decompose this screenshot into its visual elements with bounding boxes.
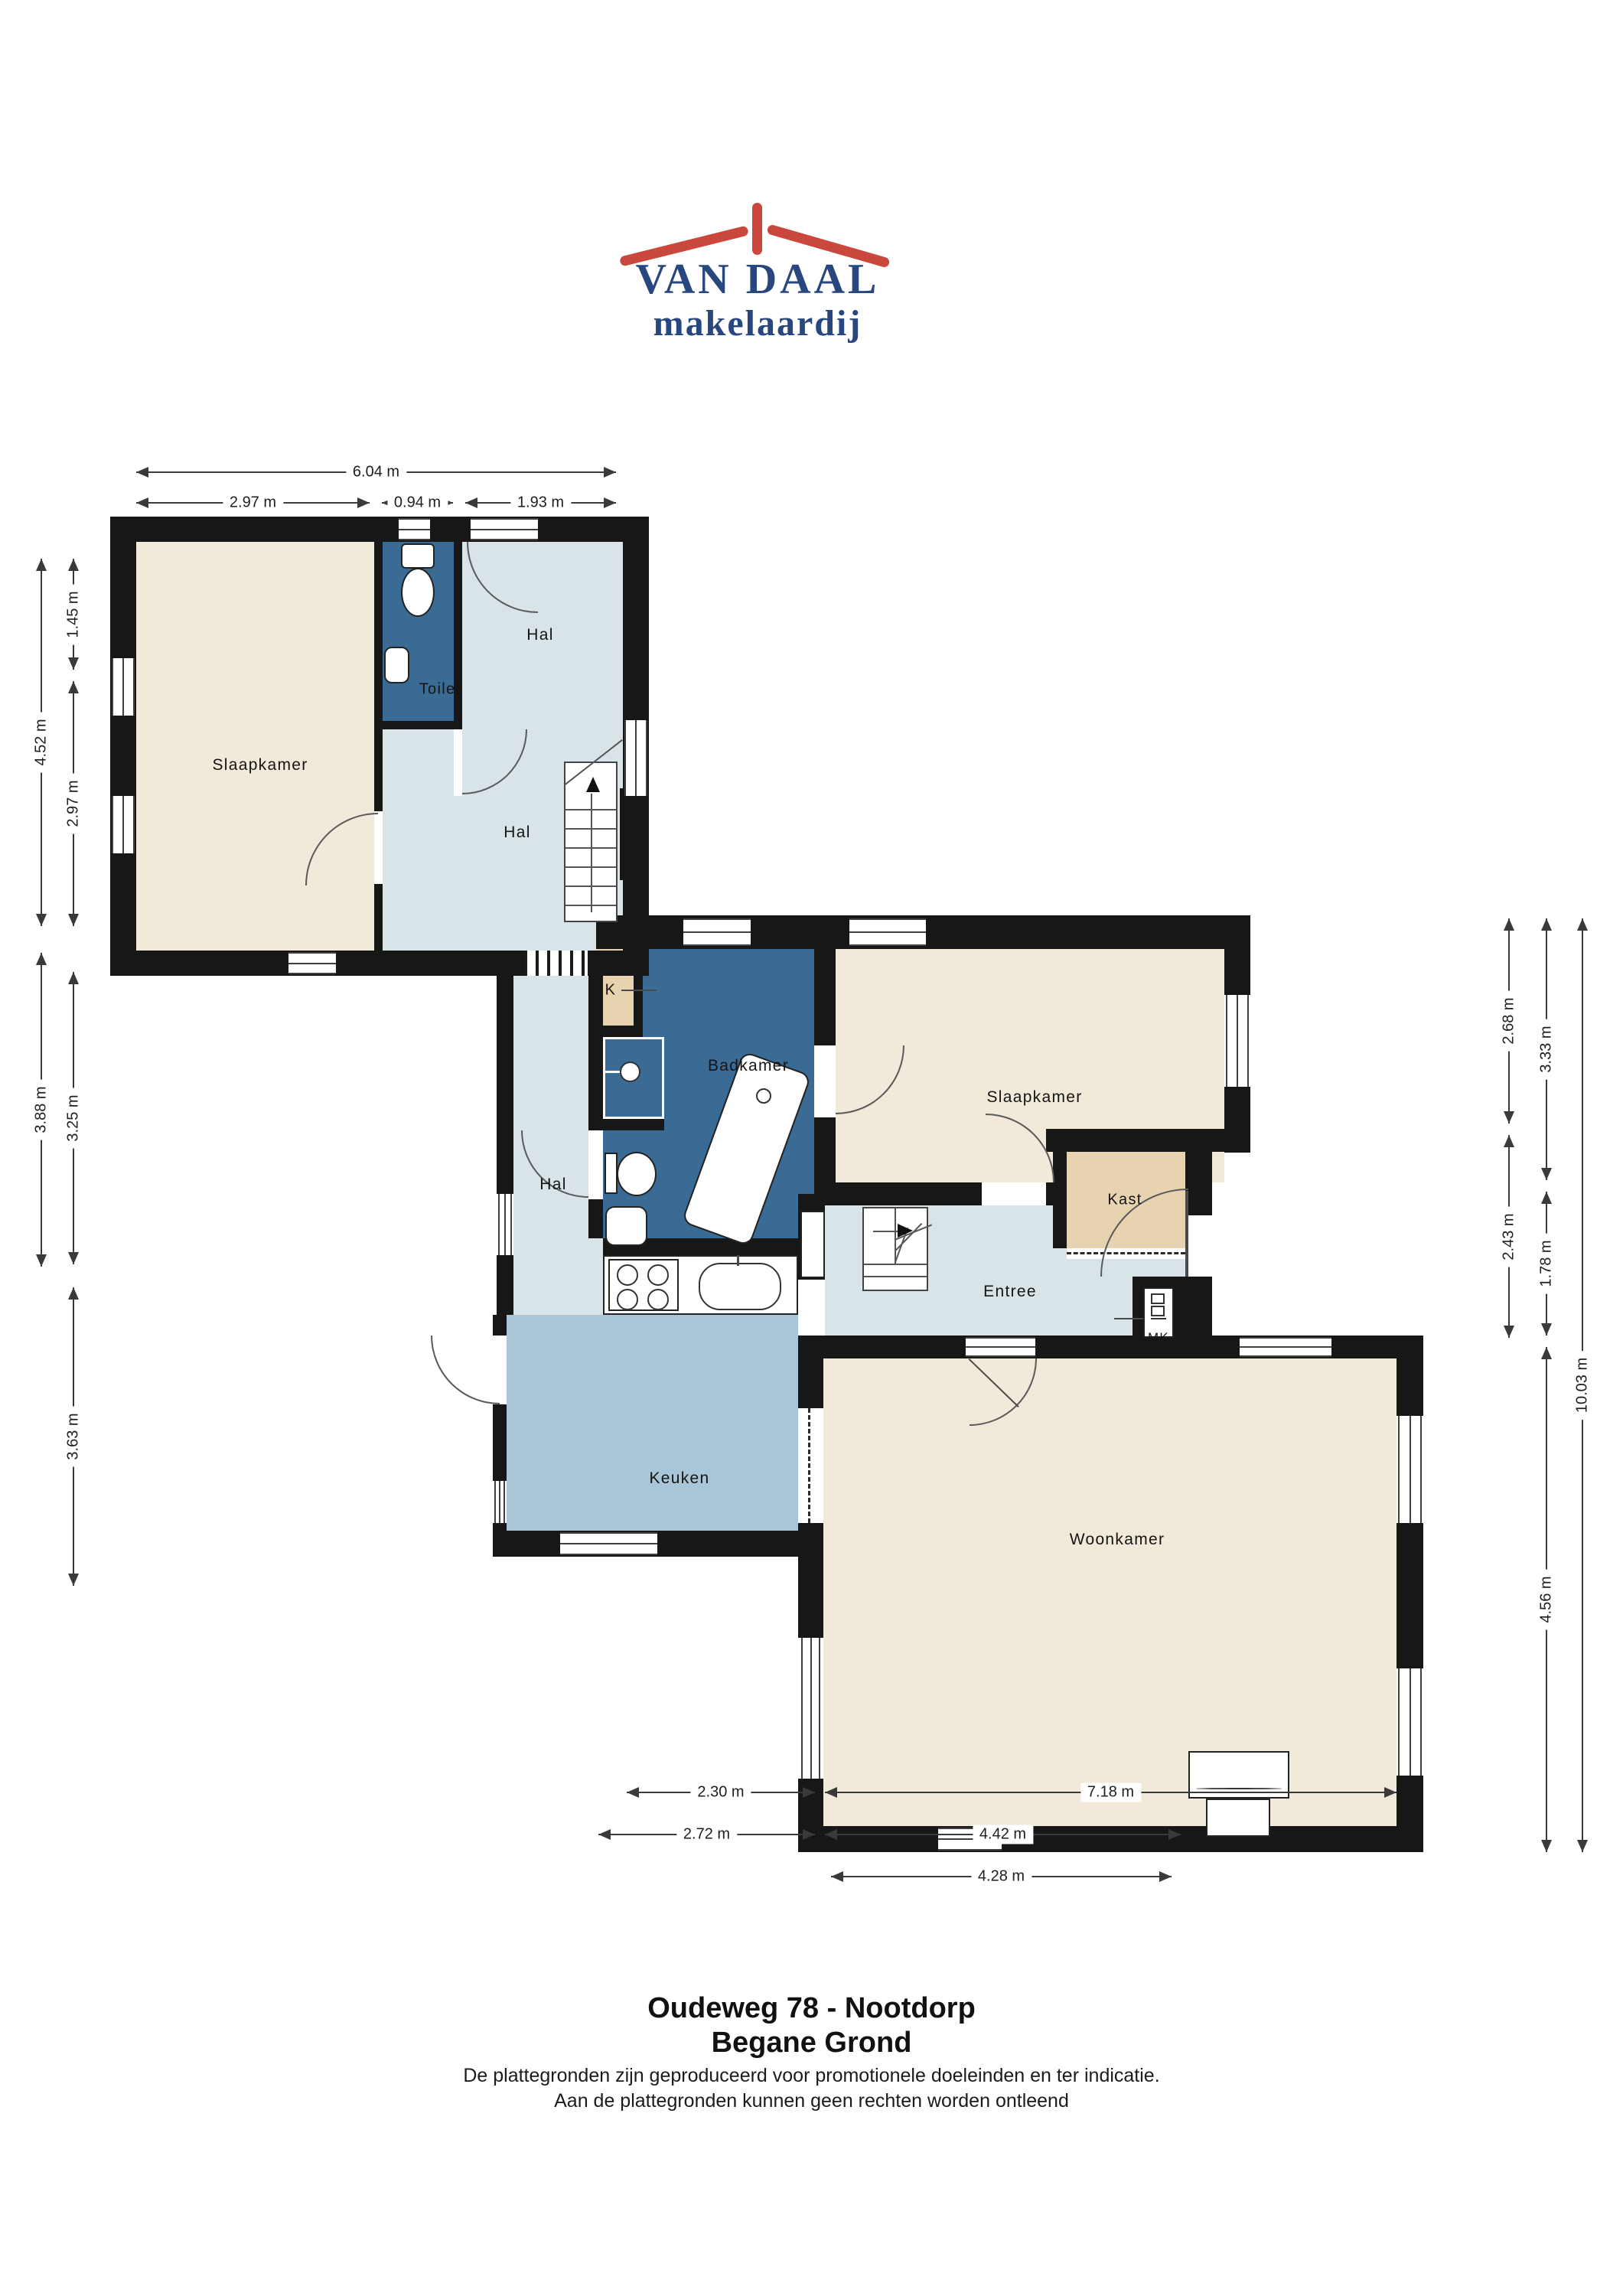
window-icon bbox=[1398, 1416, 1422, 1523]
wall bbox=[1046, 1129, 1250, 1152]
wall bbox=[1396, 1523, 1423, 1668]
dimension-top-b: 0.94 m bbox=[382, 494, 453, 512]
toilet-icon bbox=[617, 1152, 657, 1196]
dimension-right-mid-a: 3.33 m bbox=[1537, 918, 1556, 1180]
dimension-right-inner-a: 2.68 m bbox=[1500, 918, 1518, 1124]
wall bbox=[596, 1026, 634, 1037]
dimension-left-outer-a: 4.52 m bbox=[32, 559, 51, 926]
kitchen-sink-icon bbox=[699, 1263, 781, 1310]
k-leader-line bbox=[621, 990, 657, 991]
faucet-icon bbox=[737, 1255, 739, 1266]
room-woonkamer bbox=[823, 1358, 1396, 1826]
wall bbox=[374, 729, 383, 811]
window-icon bbox=[112, 658, 135, 716]
window-icon bbox=[624, 720, 647, 796]
door-opening bbox=[966, 1337, 1035, 1357]
window-icon bbox=[112, 796, 135, 853]
wall bbox=[1396, 1336, 1423, 1416]
room-label-kast: Kast bbox=[1107, 1192, 1142, 1209]
wall bbox=[1224, 915, 1250, 995]
bathtub-faucet-icon bbox=[756, 1088, 771, 1104]
window-icon bbox=[683, 918, 751, 946]
window-icon bbox=[399, 518, 430, 540]
stairs-up-arrow bbox=[898, 1224, 913, 1238]
wall bbox=[493, 1404, 507, 1481]
room-label-keuken: Keuken bbox=[649, 1469, 709, 1488]
dimension-left-inner-a: 1.45 m bbox=[64, 559, 83, 670]
wall bbox=[798, 1523, 823, 1638]
wall bbox=[588, 976, 603, 1130]
wall bbox=[620, 788, 649, 880]
room-label-slaapkamer-2: Slaapkamer bbox=[986, 1088, 1082, 1107]
window-icon bbox=[801, 1638, 820, 1779]
stairs-up-arrow bbox=[586, 777, 600, 792]
room-label-hal-top: Hal bbox=[526, 626, 553, 644]
logo-chimney-icon bbox=[752, 203, 762, 255]
window-icon bbox=[1240, 1337, 1331, 1357]
window-icon bbox=[1226, 995, 1249, 1087]
door-opening bbox=[454, 729, 462, 796]
door-opening bbox=[814, 1045, 836, 1117]
shower-arm bbox=[603, 1071, 620, 1073]
dimension-bot2-a: 2.72 m bbox=[598, 1825, 815, 1844]
stairs-icon bbox=[564, 762, 618, 922]
dimension-bot3: 4.28 m bbox=[831, 1867, 1172, 1886]
sink-icon bbox=[384, 647, 409, 683]
burner-icon bbox=[647, 1289, 669, 1310]
window-icon bbox=[471, 518, 538, 540]
window-icon bbox=[498, 1194, 512, 1255]
burner-icon bbox=[617, 1264, 638, 1286]
stairs-icon bbox=[862, 1207, 928, 1291]
wall bbox=[1046, 1182, 1053, 1205]
title-block: Oudeweg 78 - Nootdorp Begane Grond bbox=[0, 1991, 1623, 2060]
wall bbox=[374, 721, 462, 729]
room-label-slaapkamer-1: Slaapkamer bbox=[212, 756, 308, 775]
room-label-k-closet: K bbox=[605, 982, 617, 1000]
wall bbox=[1053, 1152, 1067, 1248]
logo-text-main: VAN DAAL bbox=[605, 258, 911, 301]
dimension-bot1-a: 2.30 m bbox=[627, 1783, 815, 1802]
passage-opening bbox=[798, 1280, 825, 1336]
mk-leader-line bbox=[1114, 1318, 1143, 1319]
dimension-bot1-b: 7.18 m bbox=[825, 1783, 1396, 1802]
wall bbox=[493, 1315, 507, 1336]
room-label-hal-corridor: Hal bbox=[539, 1176, 566, 1194]
open-connection-dashes bbox=[808, 1408, 810, 1523]
window-icon bbox=[1398, 1668, 1422, 1776]
wall bbox=[497, 1255, 513, 1315]
dimension-top-total: 6.04 m bbox=[136, 463, 616, 481]
sliding-door-icon bbox=[524, 951, 588, 976]
room-label-mk: MK bbox=[1148, 1330, 1169, 1345]
pass-through-counter bbox=[800, 1211, 825, 1278]
agency-logo: VAN DAAL makelaardij bbox=[605, 195, 911, 342]
dimension-left-inner-b: 2.97 m bbox=[64, 681, 83, 926]
dimension-top-a: 2.97 m bbox=[136, 494, 370, 512]
open-connection bbox=[798, 1408, 823, 1523]
room-label-woonkamer: Woonkamer bbox=[1070, 1531, 1165, 1549]
wall bbox=[814, 1117, 836, 1182]
window-icon bbox=[288, 952, 336, 974]
door-opening bbox=[1185, 1215, 1212, 1277]
room-label-badkamer: Badkamer bbox=[708, 1057, 789, 1075]
floorplan-page: VAN DAAL makelaardij bbox=[0, 0, 1623, 2296]
dimension-left-outer-b: 3.88 m bbox=[32, 953, 51, 1267]
wall bbox=[798, 1358, 823, 1408]
disclaimer: De plattegronden zijn geproduceerd voor … bbox=[0, 2063, 1623, 2113]
page-title: Oudeweg 78 - Nootdorp bbox=[0, 1991, 1623, 2026]
wall bbox=[374, 884, 383, 951]
shower-head-icon bbox=[620, 1062, 640, 1082]
wall bbox=[110, 517, 136, 976]
wall bbox=[634, 949, 643, 1037]
door-opening bbox=[982, 1182, 1046, 1205]
dimension-right-mid-c: 4.56 m bbox=[1537, 1347, 1556, 1852]
dimension-left-inner-c: 3.25 m bbox=[64, 972, 83, 1264]
room-label-entree: Entree bbox=[983, 1283, 1037, 1301]
toilet-icon bbox=[401, 568, 435, 617]
dimension-bot2-b: 4.42 m bbox=[825, 1825, 1181, 1844]
dimension-left-inner-d: 3.63 m bbox=[64, 1287, 83, 1586]
dimension-right-mid-b: 1.78 m bbox=[1537, 1192, 1556, 1336]
room-label-hal-mid: Hal bbox=[504, 823, 530, 842]
door-arc bbox=[431, 1336, 500, 1404]
wall bbox=[454, 542, 462, 729]
wall bbox=[596, 1119, 664, 1130]
toilet-cistern-icon bbox=[401, 543, 435, 569]
fireplace-hearth-icon bbox=[1206, 1799, 1270, 1837]
window-icon bbox=[560, 1532, 657, 1555]
wall bbox=[110, 517, 649, 542]
dimension-top-c: 1.93 m bbox=[465, 494, 616, 512]
dimension-right-inner-b: 2.43 m bbox=[1500, 1135, 1518, 1338]
door-opening bbox=[588, 1130, 603, 1199]
disclaimer-line1: De plattegronden zijn geproduceerd voor … bbox=[0, 2063, 1623, 2089]
wall bbox=[1185, 1129, 1212, 1215]
wall bbox=[497, 976, 513, 1194]
page-subtitle: Begane Grond bbox=[0, 2026, 1623, 2060]
window-icon bbox=[494, 1481, 505, 1523]
wall bbox=[814, 949, 836, 1045]
wall bbox=[588, 1199, 603, 1238]
wall bbox=[374, 542, 383, 729]
burner-icon bbox=[617, 1289, 638, 1310]
dimension-right-outer: 10.03 m bbox=[1573, 918, 1592, 1852]
sink-icon bbox=[605, 1206, 647, 1246]
window-icon bbox=[849, 918, 926, 946]
burner-icon bbox=[647, 1264, 669, 1286]
logo-text-sub: makelaardij bbox=[605, 305, 911, 342]
wall bbox=[814, 1182, 982, 1205]
room-label-toilet: Toilet bbox=[419, 681, 461, 699]
room-slaapkamer-1 bbox=[136, 542, 374, 951]
toilet-cistern-icon bbox=[605, 1153, 618, 1194]
door-leaf bbox=[1185, 1191, 1188, 1277]
disclaimer-line2: Aan de plattegronden kunnen geen rechten… bbox=[0, 2089, 1623, 2114]
room-keuken bbox=[507, 1315, 798, 1531]
